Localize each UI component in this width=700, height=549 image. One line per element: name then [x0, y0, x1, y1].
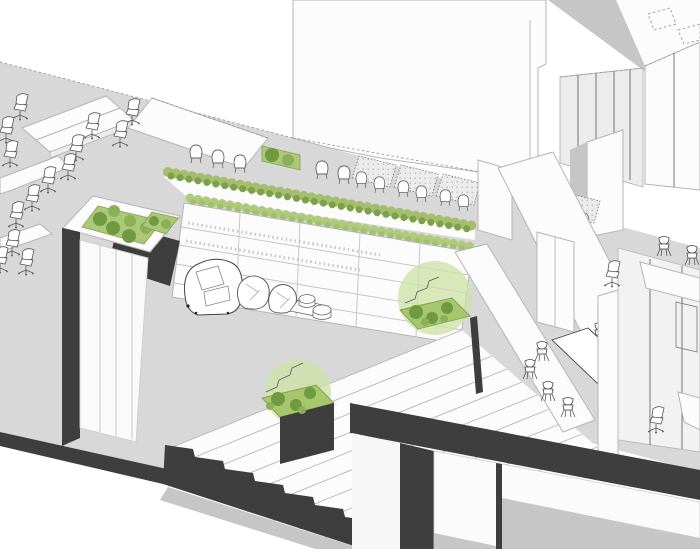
- under-slab-cut: [400, 443, 434, 549]
- bush: [161, 219, 171, 229]
- bush: [421, 318, 429, 326]
- bush: [108, 205, 120, 217]
- bush: [122, 229, 136, 243]
- partition-wall: [598, 290, 618, 468]
- bush: [265, 148, 279, 162]
- axonometric-section-drawing: [0, 0, 700, 549]
- bush: [266, 402, 274, 410]
- step-planter-upper: [398, 261, 472, 335]
- white-volume-face: [645, 42, 700, 190]
- lower-partition-cut: [496, 463, 502, 549]
- bush: [149, 216, 159, 226]
- right-office-zone: [598, 237, 700, 469]
- architectural-rendering: [0, 0, 700, 549]
- pouf: [313, 305, 331, 320]
- bush: [441, 302, 453, 314]
- bush: [93, 212, 107, 226]
- bush: [282, 154, 294, 166]
- under-slab-wall: [352, 433, 400, 549]
- bush: [298, 406, 306, 414]
- pouf: [299, 295, 315, 308]
- bush: [106, 221, 120, 235]
- central-white-volume: [293, 0, 546, 173]
- bush: [409, 305, 423, 319]
- paneled-wall-face: [80, 240, 148, 442]
- bush: [440, 315, 448, 323]
- bush: [304, 387, 316, 399]
- bush: [124, 215, 136, 227]
- bean-bag: [237, 276, 269, 309]
- white-pillar: [537, 232, 574, 332]
